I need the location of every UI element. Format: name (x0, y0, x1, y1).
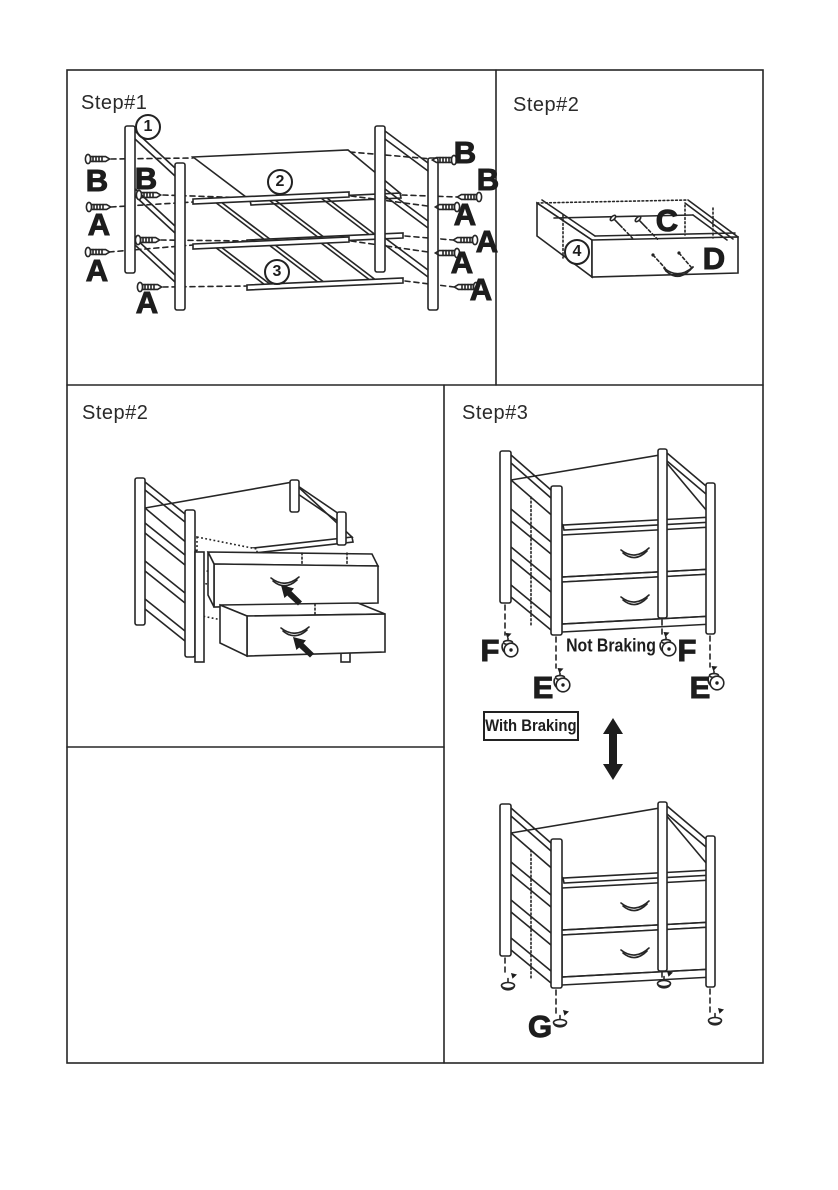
instruction-sheet: Step#1 Step#2 Step#2 Step#3 1 2 3 4 B B … (0, 0, 838, 1190)
step2-insert-diagram (65, 385, 443, 747)
swap-arrow-icon (603, 718, 623, 780)
label-screw-a: A (470, 272, 492, 308)
part-number-rack: 3 (264, 259, 290, 285)
step1-title: Step#1 (81, 92, 147, 115)
step1-diagram (65, 68, 497, 385)
caster-icon (554, 668, 570, 692)
label-caster-e: E (533, 670, 554, 706)
label-screw-b: B (86, 163, 108, 199)
label-caster-f: F (481, 633, 500, 669)
left-side-frame-part (125, 126, 185, 310)
caster-icon (660, 632, 676, 656)
label-glide-g: G (528, 1009, 552, 1045)
label-screw-b: B (135, 161, 157, 197)
with-braking-box: With Braking (483, 711, 579, 741)
label-screw-a: A (86, 253, 108, 289)
label-caster-e: E (690, 670, 711, 706)
glide-icon (502, 973, 518, 990)
not-braking-label: Not Braking (566, 636, 656, 657)
part-number-shelf: 2 (267, 169, 293, 195)
part-number-drawer: 4 (564, 239, 590, 265)
step2-drawer-title: Step#2 (513, 94, 579, 117)
step3-title: Step#3 (462, 402, 528, 425)
part-number-frame: 1 (135, 114, 161, 140)
label-screw-a: A (136, 285, 158, 321)
glide-icon (709, 1008, 725, 1025)
caster-icon (502, 633, 518, 657)
caster-icon (708, 666, 724, 690)
label-caster-f: F (678, 633, 697, 669)
label-handle-d: D (703, 241, 725, 277)
label-screw-a: A (476, 224, 498, 260)
step2-insert-title: Step#2 (82, 402, 148, 425)
label-screw-b: B (454, 135, 476, 171)
label-screw-a: A (88, 207, 110, 243)
screw-c-icons (609, 214, 660, 241)
with-braking-label: With Braking (485, 717, 576, 736)
label-screw-b: B (477, 162, 499, 198)
cart-with-braking (500, 802, 724, 1027)
label-screw-c: C (656, 203, 678, 239)
label-screw-a: A (454, 197, 476, 233)
